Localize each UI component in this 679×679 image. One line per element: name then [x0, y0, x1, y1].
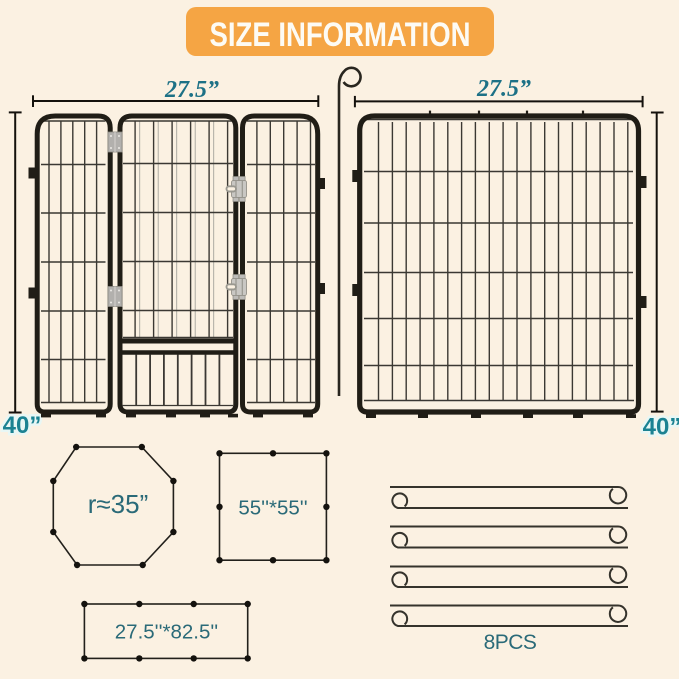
svg-text:27.5”: 27.5” — [164, 77, 219, 103]
svg-text:27.5''*82.5'': 27.5''*82.5'' — [115, 621, 218, 644]
svg-text:55''*55'': 55''*55'' — [238, 497, 307, 520]
svg-text:8PCS: 8PCS — [484, 631, 537, 654]
svg-text:40”: 40” — [643, 414, 679, 441]
svg-text:SIZE INFORMATION: SIZE INFORMATION — [210, 16, 471, 54]
svg-text:27.5”: 27.5” — [476, 76, 531, 102]
svg-text:r≈35”: r≈35” — [88, 489, 149, 519]
svg-text:40”: 40” — [3, 412, 42, 439]
